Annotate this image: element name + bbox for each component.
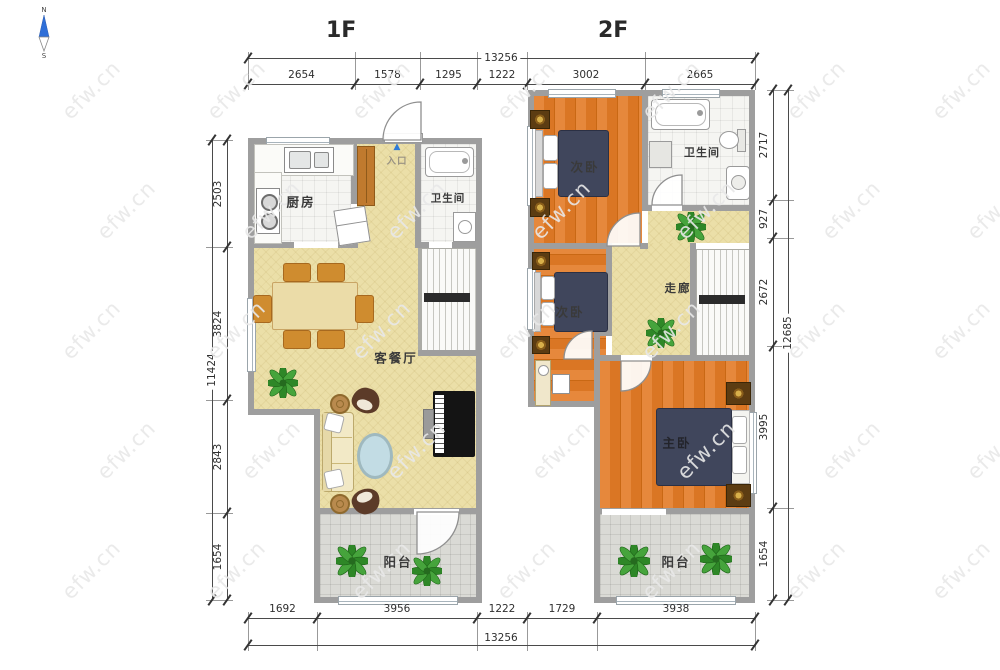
toilet-2f <box>719 129 746 150</box>
dim-label: 2672 <box>758 279 770 306</box>
bed-pillow <box>543 163 558 189</box>
vanity-desk <box>535 360 551 406</box>
nightstand <box>532 252 550 270</box>
entry-door-leaf <box>384 133 423 143</box>
wall <box>640 243 648 249</box>
dim-label: 3995 <box>758 414 770 441</box>
wall <box>418 350 482 356</box>
sofa-pillow <box>323 468 344 489</box>
watermark: efw.cn <box>962 416 1000 484</box>
wall <box>476 138 482 603</box>
floor2-title: 2F <box>598 18 628 43</box>
floorplan-canvas: N S 1F 2F <box>0 0 1000 670</box>
label-bathroom-2f: 卫生间 <box>684 144 720 160</box>
nightstand <box>726 382 751 405</box>
watermark: efw.cn <box>817 416 885 484</box>
watermark: efw.cn <box>347 56 415 124</box>
watermark: efw.cn <box>817 176 885 244</box>
label-master-bedroom: 主卧 <box>662 433 691 452</box>
dim-line <box>248 84 755 85</box>
compass-north-label: N <box>41 6 46 14</box>
watermark: efw.cn <box>962 176 1000 244</box>
wall <box>600 355 621 361</box>
dim-extension <box>206 400 233 401</box>
nightstand <box>726 484 751 507</box>
dim-label: 1654 <box>212 543 224 570</box>
wall <box>415 138 421 248</box>
bathtub-1f <box>425 147 474 177</box>
wall <box>248 409 320 415</box>
coffee-table <box>357 433 393 479</box>
door-arcs <box>0 0 1000 670</box>
stairs-2f-landing-bar <box>699 295 745 304</box>
dining-chair <box>283 330 311 349</box>
dim-label: 2843 <box>212 443 224 470</box>
watermark: efw.cn <box>782 536 850 604</box>
bathroom-sink <box>726 166 750 200</box>
compass-icon: N S <box>34 3 54 59</box>
wall <box>452 242 482 248</box>
plant-icon <box>268 368 298 398</box>
plant-icon <box>412 556 442 586</box>
watermark: efw.cn <box>927 296 995 364</box>
dining-chair <box>355 295 374 323</box>
window <box>548 89 616 98</box>
dim-label: 927 <box>758 209 770 229</box>
dim-label: 1729 <box>549 603 576 615</box>
dim-label: 3824 <box>212 310 224 337</box>
bathtub-2f <box>651 99 710 130</box>
wall <box>642 90 648 211</box>
watermark: efw.cn <box>202 56 270 124</box>
dim-label: 1222 <box>489 603 516 615</box>
label-corridor: 走廊 <box>665 280 692 296</box>
label-kitchen: 厨房 <box>286 192 315 211</box>
desk-chair <box>552 374 570 394</box>
bed-pillow <box>541 302 555 326</box>
label-living-dining: 客餐厅 <box>374 348 418 367</box>
dining-chair <box>317 330 345 349</box>
dining-chair <box>317 263 345 282</box>
dim-line <box>248 645 755 646</box>
dim-label: 2665 <box>687 69 714 81</box>
plant-icon <box>700 543 732 575</box>
wall <box>418 248 421 350</box>
entrance-arrow-icon: ▲ <box>394 142 401 152</box>
wall <box>749 90 755 603</box>
label-entrance: 入口 <box>386 153 407 167</box>
watermark: efw.cn <box>92 176 160 244</box>
watermark: efw.cn <box>57 296 125 364</box>
dim-label: 1295 <box>435 69 462 81</box>
dim-line <box>248 618 755 619</box>
side-table <box>330 394 350 414</box>
dining-chair <box>283 263 311 282</box>
floor1-title: 1F <box>326 18 356 43</box>
piano <box>433 391 475 457</box>
dim-label: 1578 <box>374 69 401 81</box>
label-balcony-2f: 阳台 <box>661 552 690 571</box>
dim-label: 2717 <box>758 132 770 159</box>
compass-south-label: S <box>42 52 47 59</box>
dim-extension <box>206 247 233 248</box>
dim-overall-label: 11424 <box>206 350 218 389</box>
compass-needle-south <box>39 37 49 51</box>
plant-icon <box>646 318 676 348</box>
balcony-door <box>414 509 459 515</box>
dim-overall-label: 13256 <box>481 52 520 64</box>
watermark: efw.cn <box>237 416 305 484</box>
wall <box>690 243 696 361</box>
wall <box>594 330 600 603</box>
bed-pillow <box>541 276 555 300</box>
washer-1f <box>453 212 476 242</box>
plant-icon <box>336 545 368 577</box>
dim-label: 3938 <box>663 603 690 615</box>
bathroom-cabinet <box>649 141 672 168</box>
watermark: efw.cn <box>57 56 125 124</box>
window <box>662 89 720 98</box>
bed-headboard <box>534 272 541 332</box>
label-balcony-1f: 阳台 <box>383 552 412 571</box>
dim-label: 1654 <box>758 541 770 568</box>
kitchen-cabinet <box>357 146 375 206</box>
kitchen-sink <box>284 147 334 173</box>
wall <box>682 205 755 211</box>
dining-chair <box>253 295 272 323</box>
dim-overall-label: 13256 <box>481 632 520 644</box>
fridge <box>333 206 370 247</box>
dim-label: 2503 <box>212 180 224 207</box>
watermark: efw.cn <box>492 536 560 604</box>
label-bathroom-1f: 卫生间 <box>431 191 466 206</box>
wall <box>528 243 607 249</box>
watermark: efw.cn <box>927 536 995 604</box>
stairs-1f-landing-bar <box>424 293 470 302</box>
piano-bench <box>423 409 434 439</box>
plant-icon <box>676 212 706 242</box>
dining-table <box>272 282 358 330</box>
bed-pillow <box>543 135 558 161</box>
wall <box>314 409 320 603</box>
bed-pillow <box>732 416 747 444</box>
label-bedroom-a: 次卧 <box>570 157 599 176</box>
nightstand <box>530 198 550 217</box>
wall <box>642 205 652 211</box>
watermark: efw.cn <box>92 416 160 484</box>
wall <box>690 355 755 361</box>
watermark: efw.cn <box>57 536 125 604</box>
dim-line <box>227 140 228 600</box>
watermark: efw.cn <box>527 416 595 484</box>
dim-extension <box>206 513 233 514</box>
side-table <box>330 494 350 514</box>
dim-label: 1692 <box>269 603 296 615</box>
dim-label: 3956 <box>384 603 411 615</box>
compass-needle-north <box>39 15 49 37</box>
dim-label: 1222 <box>489 69 516 81</box>
label-bedroom-b: 次卧 <box>555 302 584 321</box>
plant-icon <box>618 545 650 577</box>
dim-label: 2654 <box>288 69 315 81</box>
nightstand <box>532 336 550 354</box>
dim-overall-label: 12685 <box>782 313 794 352</box>
watermark: efw.cn <box>927 56 995 124</box>
nightstand <box>530 110 550 129</box>
bed-pillow <box>732 446 747 474</box>
stove <box>256 188 280 234</box>
balcony-door <box>602 509 666 515</box>
bed-headboard <box>535 130 543 197</box>
dim-label: 3002 <box>573 69 600 81</box>
